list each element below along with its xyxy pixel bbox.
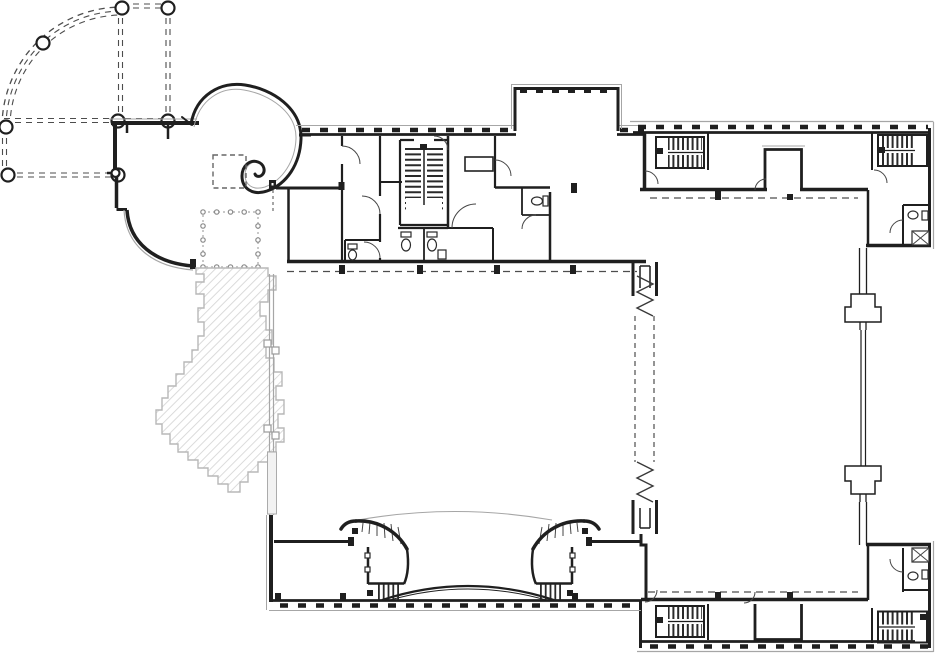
quarter-circle-colonnade: [0, 2, 175, 182]
curved-stair-left: [341, 521, 408, 596]
north-service-band: [287, 84, 646, 274]
colonnade-columns: [0, 2, 175, 182]
south-entrance-band: [269, 512, 641, 611]
restroom-top-right: [890, 205, 930, 245]
expansion-joint-strip: [633, 262, 657, 600]
curved-stair-right: [532, 521, 599, 596]
stair-bottom-left: [645, 590, 708, 640]
switchback-stair-core: [400, 136, 448, 228]
stair-top-right: [872, 133, 927, 183]
spiral-pavilion-wall: [182, 84, 342, 212]
floor-plan-page: [0, 0, 940, 660]
right-hall: [641, 545, 868, 600]
stair-core-and-restrooms: [339, 136, 578, 262]
floor-plan-canvas: [0, 0, 940, 660]
top-alcove-room: [511, 84, 622, 131]
column-grid-square: [201, 210, 260, 269]
entrance-arch: [382, 586, 554, 600]
stepped-hatch-terrace: [156, 268, 284, 492]
top-band-alcove: [755, 146, 805, 194]
curtain-wall-funnel-piers: [845, 248, 881, 545]
stair-top-left: [645, 133, 708, 184]
right-wing-outer: [630, 122, 934, 653]
stair-bottom-right: [872, 608, 927, 643]
west-curved-wing: [107, 119, 199, 270]
right-wing-top-band: [640, 133, 930, 245]
restroom-bottom-right: [890, 548, 930, 592]
